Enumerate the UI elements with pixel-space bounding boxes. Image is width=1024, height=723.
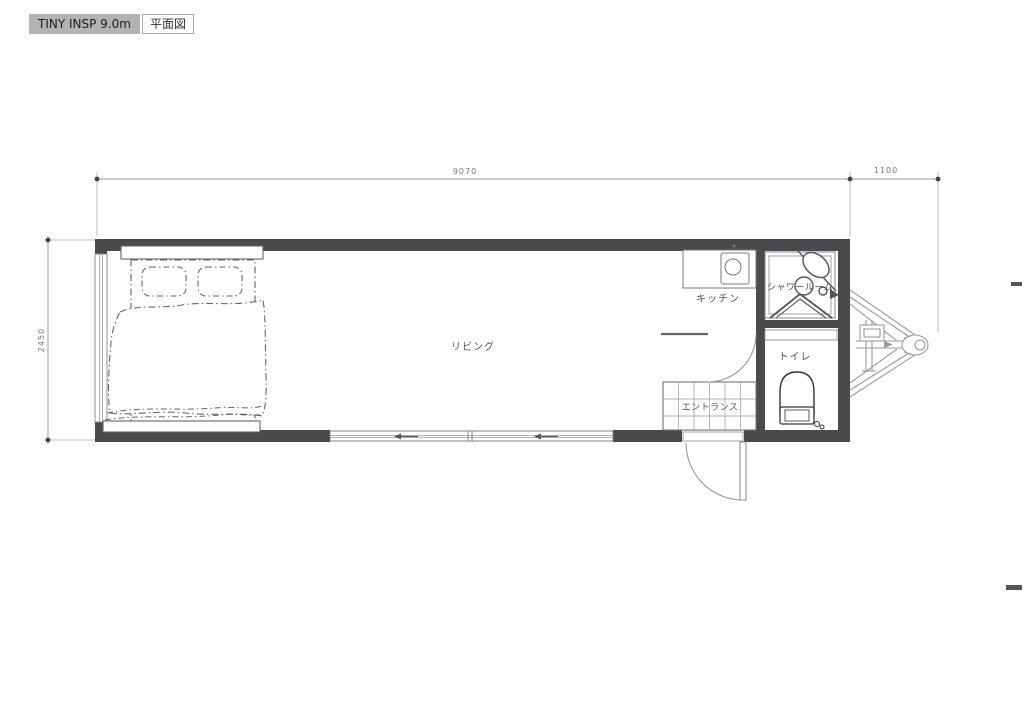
dimension-width-2450	[44, 236, 95, 444]
interior-door-swing-arc	[708, 334, 756, 382]
bed	[103, 246, 266, 432]
entrance-door	[683, 432, 746, 500]
toilet-label: トイレ	[779, 352, 812, 363]
winch-box	[860, 325, 884, 341]
kitchen-counter	[683, 245, 756, 289]
pillow-left	[142, 267, 186, 296]
footboard	[103, 421, 260, 432]
door-swing-arc	[686, 443, 743, 500]
sliding-window	[330, 431, 613, 441]
floor-plan-page: TINY INSP 9.0m 平面図 9070 1100 2450	[0, 0, 1024, 723]
dimension-label-hitch: 1100	[874, 166, 898, 175]
entrance-label: エントランス	[682, 402, 739, 413]
floor-plan-drawing: 9070 1100 2450	[0, 0, 1024, 723]
dimension-label-width: 2450	[37, 328, 46, 352]
interior-door	[661, 334, 756, 382]
duvet	[108, 300, 266, 416]
pillow-right	[198, 267, 242, 296]
edge-artifacts	[1006, 282, 1022, 590]
shower-partition-opening	[765, 330, 838, 340]
shower-room-label: シャワールーム	[767, 282, 833, 293]
headboard	[121, 246, 263, 259]
drawbar-shaft	[856, 341, 904, 348]
coupler-icon	[902, 335, 928, 355]
left-window	[95, 254, 107, 422]
faucet-icon	[725, 259, 741, 275]
toilet-fixture	[780, 372, 824, 429]
trailer-hitch	[850, 290, 928, 397]
dimension-label-length: 9070	[453, 167, 477, 176]
living-label: リビング	[451, 340, 495, 353]
kitchen-label: キッチン	[696, 293, 740, 305]
